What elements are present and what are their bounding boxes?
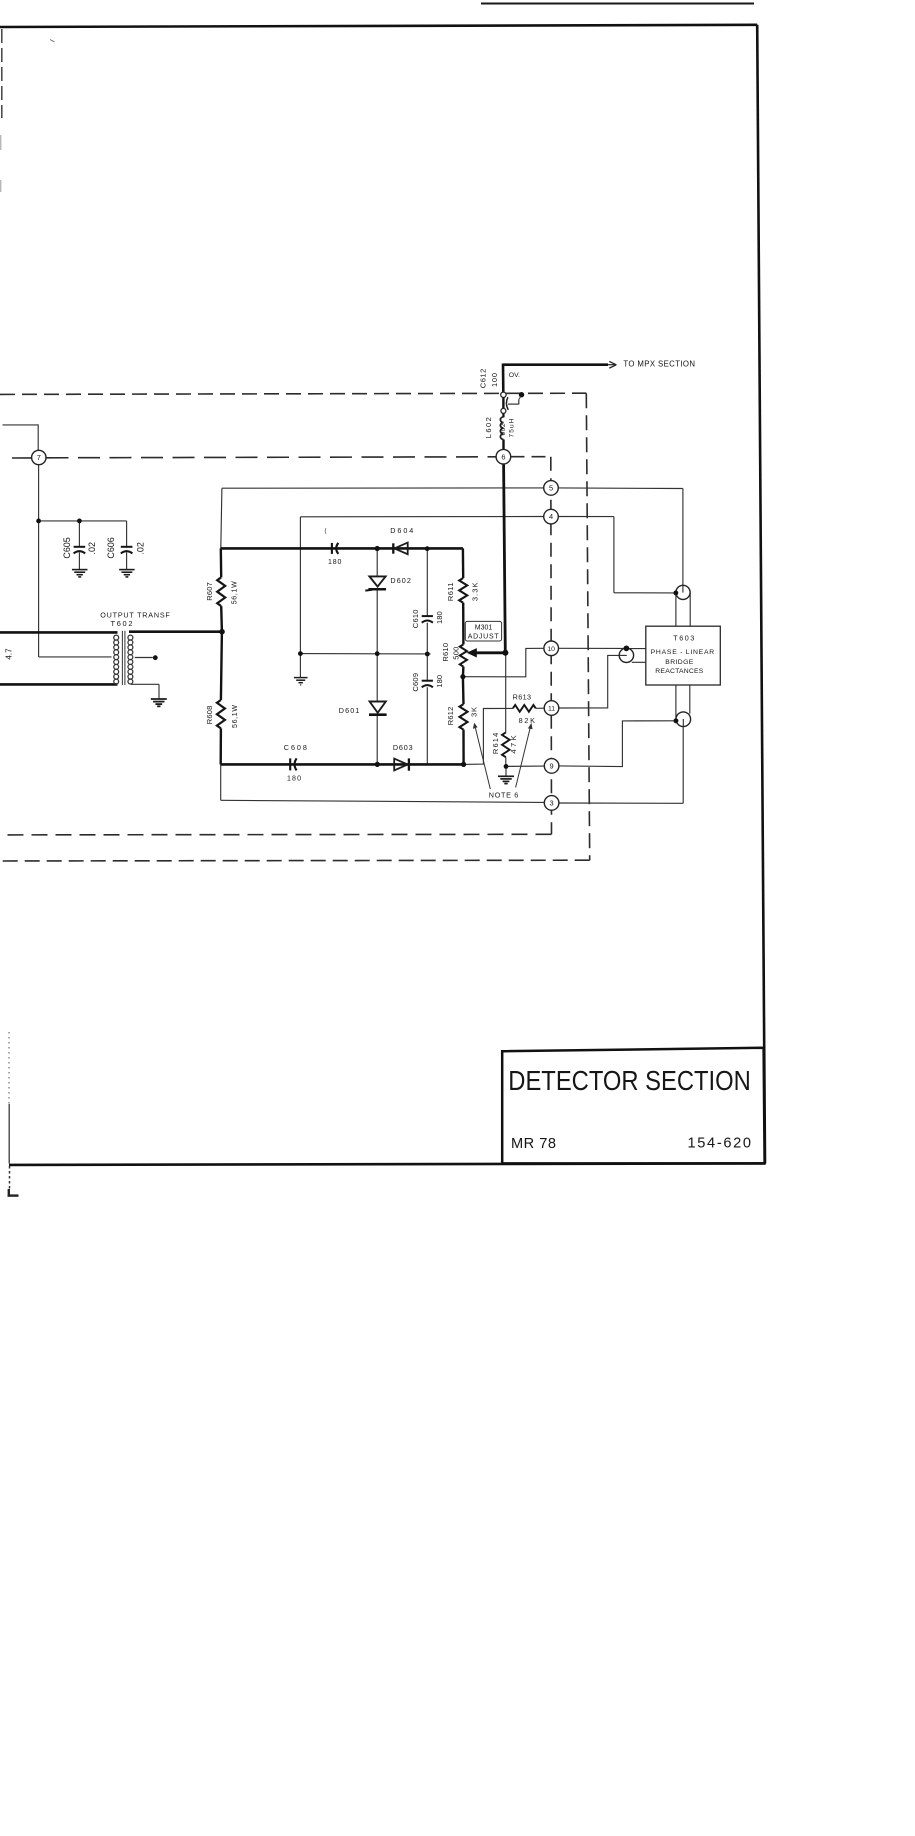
svg-text:R610: R610 — [441, 643, 450, 662]
svg-text:180: 180 — [435, 675, 444, 688]
svg-text:3K: 3K — [470, 707, 479, 717]
svg-text:OV.: OV. — [509, 372, 520, 379]
svg-text:REACTANCES: REACTANCES — [655, 668, 703, 675]
svg-text:R608: R608 — [205, 706, 214, 725]
svg-text:4.7: 4.7 — [5, 648, 14, 660]
svg-text:180: 180 — [328, 559, 341, 566]
svg-text:DETECTOR SECTION: DETECTOR SECTION — [508, 1065, 751, 1096]
svg-text:NOTE 6: NOTE 6 — [489, 790, 519, 799]
svg-text:9: 9 — [550, 762, 554, 771]
svg-text:56,1W: 56,1W — [232, 581, 239, 604]
svg-text:C610: C610 — [411, 610, 420, 629]
svg-text:11: 11 — [548, 706, 555, 713]
svg-text:180: 180 — [435, 611, 444, 624]
svg-text:R613: R613 — [513, 692, 531, 701]
svg-text:R607: R607 — [205, 582, 214, 601]
svg-text:5: 5 — [549, 484, 553, 493]
svg-text:R612: R612 — [446, 707, 455, 726]
svg-text:D602: D602 — [390, 576, 411, 585]
svg-text:3.3K: 3.3K — [470, 583, 479, 602]
svg-text:3: 3 — [550, 799, 554, 808]
svg-text:D603: D603 — [393, 743, 413, 752]
svg-text:6: 6 — [501, 452, 505, 461]
svg-text:100: 100 — [490, 373, 499, 387]
svg-text:10: 10 — [547, 646, 555, 653]
svg-text:PHASE - LINEAR: PHASE - LINEAR — [651, 649, 715, 656]
svg-text:TO MPX SECTION: TO MPX SECTION — [623, 359, 695, 368]
svg-text:C609: C609 — [411, 673, 420, 692]
svg-text:56,1W: 56,1W — [232, 705, 239, 728]
svg-text:.02: .02 — [136, 542, 146, 555]
svg-text:500: 500 — [452, 647, 461, 660]
svg-text:82K: 82K — [519, 716, 536, 725]
svg-text:R614: R614 — [491, 733, 500, 754]
svg-text:180: 180 — [287, 775, 301, 782]
svg-text:R611: R611 — [446, 583, 455, 602]
svg-text:MR 78: MR 78 — [511, 1136, 556, 1152]
svg-text:4: 4 — [549, 512, 553, 521]
svg-text:75uH: 75uH — [508, 418, 515, 437]
svg-text:D601: D601 — [339, 706, 360, 715]
svg-text:C606: C606 — [106, 537, 116, 558]
svg-text:T603: T603 — [673, 634, 694, 643]
svg-text:C612: C612 — [479, 369, 488, 389]
svg-text:.02: .02 — [87, 542, 97, 555]
svg-text:7: 7 — [37, 453, 41, 462]
svg-text:BRIDGE: BRIDGE — [665, 659, 693, 666]
svg-text:C605: C605 — [62, 537, 72, 558]
svg-text:M301: M301 — [475, 625, 493, 632]
svg-text:ADJUST: ADJUST — [468, 634, 500, 641]
svg-text:47K: 47K — [509, 735, 518, 753]
svg-text:002: 002 — [500, 423, 507, 435]
svg-text:(: ( — [325, 529, 327, 535]
svg-text:L602: L602 — [484, 417, 493, 438]
